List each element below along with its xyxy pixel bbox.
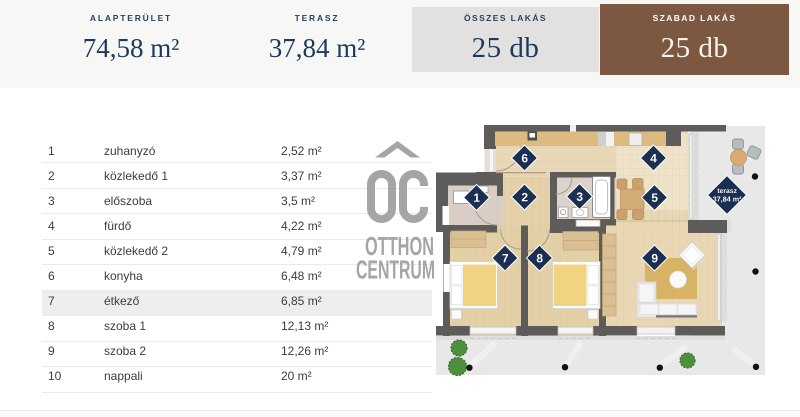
svg-text:CENTRUM: CENTRUM: [356, 255, 435, 285]
